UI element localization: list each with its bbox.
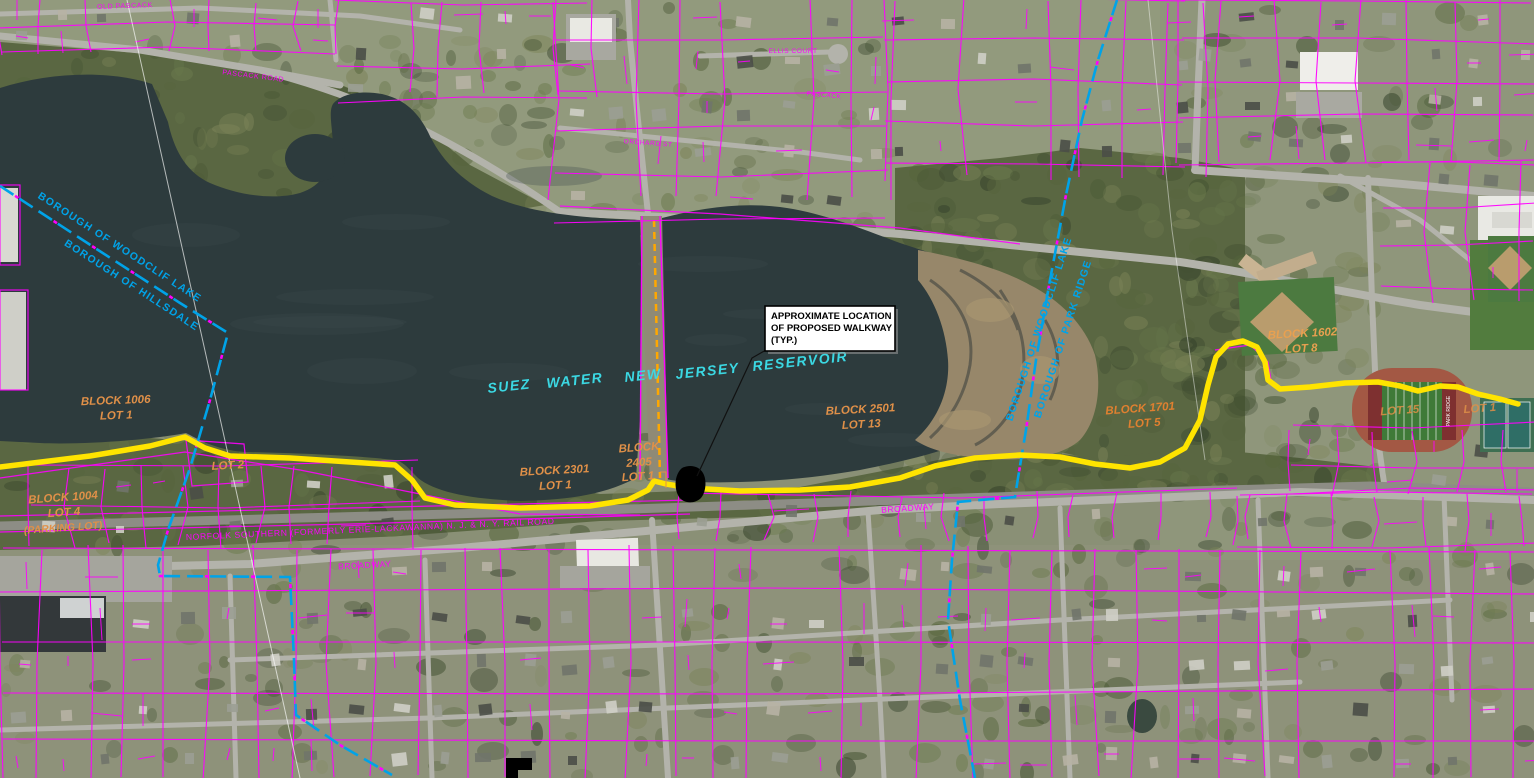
tree-blob xyxy=(1010,171,1020,181)
tree-blob xyxy=(1219,180,1237,202)
tree-blob xyxy=(1481,602,1495,622)
building xyxy=(1149,757,1158,769)
building xyxy=(1484,174,1499,186)
svg-text:LOT 1: LOT 1 xyxy=(539,479,572,493)
building xyxy=(307,613,319,625)
tree-blob xyxy=(534,90,546,104)
building xyxy=(735,16,751,28)
tree-blob xyxy=(798,195,814,205)
tree-blob xyxy=(1169,189,1187,199)
building xyxy=(1473,97,1482,106)
building xyxy=(1441,666,1454,677)
tree-blob xyxy=(1222,507,1236,531)
building xyxy=(1486,520,1495,530)
tree-blob xyxy=(995,223,1017,241)
tree-blob xyxy=(1100,467,1130,491)
building xyxy=(895,147,903,156)
tree-blob xyxy=(499,104,517,126)
building xyxy=(608,106,623,119)
tree-blob xyxy=(843,752,867,760)
tree-blob xyxy=(1172,219,1200,229)
building xyxy=(357,659,366,671)
water-streak xyxy=(685,334,747,346)
tree-blob xyxy=(1001,647,1017,657)
building xyxy=(785,57,800,64)
tree-blob xyxy=(1047,165,1067,185)
tree-blob xyxy=(212,124,240,134)
tree-blob xyxy=(1144,220,1164,238)
tree-blob xyxy=(474,139,484,147)
callout-line-2: OF PROPOSED WALKWAY xyxy=(771,323,893,334)
tree-blob xyxy=(977,214,999,222)
tree-blob xyxy=(689,668,719,686)
building xyxy=(433,705,442,718)
building xyxy=(1106,609,1118,621)
tree-blob xyxy=(1089,599,1115,609)
tree-blob xyxy=(1185,296,1207,306)
building xyxy=(570,108,585,116)
tree-blob xyxy=(1037,153,1051,165)
building xyxy=(306,709,317,720)
tree-blob xyxy=(1160,705,1170,729)
building xyxy=(181,612,195,624)
tree-blob xyxy=(1237,353,1257,371)
tree-blob xyxy=(742,178,760,194)
tree-blob xyxy=(219,656,229,668)
tree-blob xyxy=(1195,717,1207,741)
building xyxy=(1237,708,1252,718)
tree-blob xyxy=(786,734,816,752)
tree-blob xyxy=(1094,517,1114,537)
tree-blob xyxy=(857,212,873,222)
building xyxy=(1105,711,1116,723)
tree-blob xyxy=(413,72,439,82)
tree-blob xyxy=(1099,434,1109,448)
tree-blob xyxy=(1215,202,1235,216)
building xyxy=(391,752,407,767)
tree-blob xyxy=(524,39,542,51)
building xyxy=(1355,568,1366,576)
tree-blob xyxy=(474,107,498,123)
building xyxy=(61,710,73,722)
tree-blob xyxy=(164,82,176,90)
building xyxy=(1240,58,1252,67)
tree-blob xyxy=(983,717,999,741)
tree-blob xyxy=(263,105,287,121)
building xyxy=(697,517,708,526)
tree-blob xyxy=(627,711,647,729)
tree-blob xyxy=(948,218,980,232)
building xyxy=(899,568,916,581)
building xyxy=(1189,659,1205,670)
building xyxy=(227,704,238,712)
building xyxy=(1004,515,1014,525)
building xyxy=(562,664,578,675)
tree-blob xyxy=(858,43,874,55)
building xyxy=(766,701,781,716)
building xyxy=(571,191,585,200)
tree-blob xyxy=(1264,425,1282,447)
building xyxy=(1092,509,1101,520)
tree-blob xyxy=(288,540,302,554)
tree-blob xyxy=(102,57,116,67)
tennis-court xyxy=(1508,402,1530,448)
tree-blob xyxy=(956,754,968,772)
tree-blob xyxy=(81,49,99,59)
tree-blob xyxy=(1382,552,1396,564)
tree-blob xyxy=(1094,336,1108,358)
building xyxy=(823,63,840,76)
tree-blob xyxy=(622,669,650,677)
building xyxy=(348,84,363,93)
building xyxy=(1231,609,1246,621)
tree-blob xyxy=(162,747,178,763)
tree-blob xyxy=(529,617,541,631)
building xyxy=(730,757,739,770)
tree-blob xyxy=(1272,116,1298,138)
tree-blob xyxy=(527,107,555,119)
building xyxy=(1062,754,1078,766)
tree-blob xyxy=(531,722,543,746)
building xyxy=(349,704,365,715)
tree-blob xyxy=(1144,351,1166,363)
tree-blob xyxy=(921,701,951,713)
water-streak xyxy=(506,166,602,186)
building xyxy=(497,49,506,59)
tree-blob xyxy=(1124,316,1148,330)
tree-blob xyxy=(661,193,675,211)
building xyxy=(1311,609,1326,620)
tree-blob xyxy=(463,105,477,119)
building xyxy=(356,48,367,61)
building xyxy=(16,31,27,41)
tree-blob xyxy=(838,117,860,129)
map-canvas[interactable]: PARK RIDGE SUEZ WATER NEW JERSEY RESER xyxy=(0,0,1534,778)
building xyxy=(568,756,577,765)
building xyxy=(771,617,784,629)
tree-blob xyxy=(1032,568,1050,578)
tree-blob xyxy=(836,757,856,778)
building xyxy=(58,10,67,20)
building xyxy=(1178,61,1188,71)
tree-blob xyxy=(316,760,328,774)
tree-blob xyxy=(1284,724,1302,740)
tree-blob xyxy=(1257,234,1285,244)
tree-blob xyxy=(1116,380,1142,400)
building xyxy=(941,562,950,572)
building xyxy=(1101,100,1111,112)
building xyxy=(1059,140,1070,153)
building xyxy=(561,712,571,720)
building xyxy=(1102,146,1112,157)
tree-blob xyxy=(1099,356,1111,374)
tree-blob xyxy=(1264,396,1286,404)
water-streak xyxy=(230,313,404,335)
tree-blob xyxy=(987,178,1001,194)
building xyxy=(1321,755,1332,769)
tree-blob xyxy=(147,708,157,722)
tree-blob xyxy=(673,83,687,97)
tree-blob xyxy=(1072,544,1086,564)
tree-blob xyxy=(678,621,710,631)
building xyxy=(304,751,317,761)
tree-blob xyxy=(1306,199,1320,209)
svg-text:BLOCK 1006: BLOCK 1006 xyxy=(81,394,152,408)
tree-blob xyxy=(1460,15,1478,31)
tree-blob xyxy=(1208,457,1232,465)
tree-blob xyxy=(446,50,456,66)
svg-text:LOT 13: LOT 13 xyxy=(841,418,881,432)
svg-text:2405: 2405 xyxy=(625,456,653,470)
tree-blob xyxy=(289,109,315,129)
tree-blob xyxy=(712,745,734,765)
building xyxy=(1341,135,1353,144)
tree-blob xyxy=(961,513,993,537)
building xyxy=(475,753,491,762)
building xyxy=(786,505,797,517)
callout-line-1: APPROXIMATE LOCATION xyxy=(771,311,892,322)
tree-blob xyxy=(1265,452,1281,468)
building xyxy=(1071,608,1081,620)
tree-blob xyxy=(1222,419,1246,441)
tree-blob xyxy=(1098,447,1108,463)
tree-blob xyxy=(1033,477,1043,487)
callout-line-3: (TYP.) xyxy=(771,335,797,346)
tree-blob xyxy=(1411,114,1433,130)
tree-blob xyxy=(1176,209,1190,219)
building xyxy=(1353,702,1369,716)
building xyxy=(1447,517,1458,527)
tree-blob xyxy=(1234,389,1256,411)
tree-blob xyxy=(984,674,1008,684)
tree-blob xyxy=(516,148,544,160)
building xyxy=(477,654,486,667)
building xyxy=(941,19,955,29)
tree-blob xyxy=(1188,182,1206,202)
tree-blob xyxy=(970,470,986,482)
industrial-left-2 xyxy=(0,292,26,390)
tree-blob xyxy=(1259,5,1281,15)
tree-blob xyxy=(514,55,526,71)
field-text: PARK RIDGE xyxy=(1446,395,1452,426)
svg-text:LOT 5: LOT 5 xyxy=(1128,417,1162,431)
small-pond xyxy=(1127,699,1157,733)
tree-blob xyxy=(1404,735,1426,745)
building xyxy=(1289,139,1303,148)
tree-blob xyxy=(734,155,756,169)
tree-blob xyxy=(1236,196,1256,208)
tree-blob xyxy=(4,481,30,491)
building xyxy=(827,17,839,26)
tree-blob xyxy=(680,147,692,159)
tree-blob xyxy=(909,743,941,763)
tree-blob xyxy=(1291,638,1311,658)
building xyxy=(307,481,320,489)
tree-blob xyxy=(464,629,486,645)
building xyxy=(97,14,106,22)
tree-blob xyxy=(1343,565,1355,587)
tree-blob xyxy=(1207,718,1237,740)
tree-blob xyxy=(1156,326,1168,350)
building xyxy=(849,657,864,666)
tree-blob xyxy=(339,45,357,63)
tree-blob xyxy=(907,202,931,212)
tree-blob xyxy=(1035,706,1051,724)
tree-blob xyxy=(71,58,83,76)
tree-blob xyxy=(1243,722,1255,732)
water-streak xyxy=(342,214,450,230)
industrial-left-1 xyxy=(0,188,18,262)
building xyxy=(1485,563,1495,576)
building xyxy=(1245,102,1260,110)
aerial-map[interactable]: PARK RIDGE SUEZ WATER NEW JERSEY RESER xyxy=(0,0,1534,778)
tree-blob xyxy=(505,81,521,91)
tree-blob xyxy=(722,88,732,106)
tree-blob xyxy=(728,568,758,582)
tree-blob xyxy=(1119,272,1131,294)
tree-blob xyxy=(490,569,516,577)
building xyxy=(1019,704,1029,713)
building xyxy=(1018,64,1032,74)
tree-blob xyxy=(1214,473,1228,487)
building xyxy=(1197,615,1206,622)
tree-blob xyxy=(195,678,225,690)
building xyxy=(1177,102,1189,114)
tree-blob xyxy=(535,665,547,687)
building xyxy=(1428,94,1441,104)
tree-blob xyxy=(264,91,280,99)
tree-blob xyxy=(133,458,163,476)
tree-blob xyxy=(1189,237,1217,257)
building xyxy=(1320,660,1333,670)
svg-text:LOT 8: LOT 8 xyxy=(1285,342,1319,356)
tree-blob xyxy=(948,705,968,715)
tree-blob xyxy=(1346,627,1364,641)
building xyxy=(1310,567,1324,578)
tree-blob xyxy=(398,53,410,73)
building xyxy=(936,664,949,675)
building xyxy=(1396,759,1409,768)
tree-blob xyxy=(1350,748,1368,762)
building xyxy=(1440,225,1455,234)
tree-blob xyxy=(245,674,257,682)
tree-blob xyxy=(983,166,1013,180)
tree-blob xyxy=(1220,394,1234,404)
tree-blob xyxy=(1059,467,1091,477)
tree-blob xyxy=(379,35,401,49)
building xyxy=(524,653,536,666)
building xyxy=(185,753,194,764)
tree-blob xyxy=(1329,438,1355,452)
tree-blob xyxy=(839,566,869,584)
tree-blob xyxy=(175,112,185,124)
building xyxy=(1286,60,1299,68)
tree-blob xyxy=(1,683,11,697)
building xyxy=(1396,220,1411,228)
tree-blob xyxy=(1304,517,1336,527)
building xyxy=(419,7,434,20)
tree-blob xyxy=(1470,685,1502,703)
building xyxy=(979,654,993,667)
tree-blob xyxy=(1443,149,1457,171)
building xyxy=(869,108,880,121)
tree-blob xyxy=(1084,575,1108,599)
building xyxy=(1429,138,1440,151)
tree-blob xyxy=(1331,423,1347,437)
tree-blob xyxy=(1309,407,1319,423)
label-lot-2: LOT 2 xyxy=(211,459,245,473)
tree-blob xyxy=(521,121,547,129)
peninsula-pond xyxy=(285,134,345,182)
building xyxy=(639,701,653,712)
tree-blob xyxy=(1268,511,1290,527)
svg-text:LOT 1: LOT 1 xyxy=(100,409,133,422)
building xyxy=(440,752,449,765)
large-building-top-right xyxy=(1300,52,1358,90)
water-streak xyxy=(307,358,417,384)
tree-blob xyxy=(1208,547,1224,557)
building xyxy=(189,486,204,500)
tree-blob xyxy=(1116,195,1142,211)
building xyxy=(1178,143,1191,153)
water-streak xyxy=(276,289,434,305)
building xyxy=(978,53,987,65)
building xyxy=(1108,658,1120,667)
building xyxy=(229,35,240,48)
tree-blob xyxy=(694,194,708,202)
tree-blob xyxy=(1409,568,1423,586)
tree-blob xyxy=(1279,444,1309,462)
tree-blob xyxy=(1213,278,1229,292)
building xyxy=(1198,48,1211,61)
tree-blob xyxy=(1380,672,1402,692)
tree-blob xyxy=(663,2,675,14)
tree-blob xyxy=(258,169,274,179)
building xyxy=(1234,661,1250,671)
building xyxy=(482,562,492,571)
building xyxy=(651,108,666,121)
tree-blob xyxy=(1330,144,1350,164)
tree-blob xyxy=(1342,521,1372,539)
tree-blob xyxy=(1488,139,1512,157)
tree-blob xyxy=(634,736,648,752)
tree-blob xyxy=(938,205,950,213)
building xyxy=(1530,612,1534,622)
building xyxy=(1277,610,1290,618)
tree-blob xyxy=(694,708,726,718)
building xyxy=(1233,753,1247,763)
tree-blob xyxy=(1138,203,1160,223)
building xyxy=(270,653,280,666)
svg-text:LOT 4: LOT 4 xyxy=(47,506,81,520)
tree-blob xyxy=(15,732,35,744)
tree-blob xyxy=(197,128,207,150)
building xyxy=(891,100,906,110)
tree-blob xyxy=(1303,740,1323,758)
building xyxy=(100,754,109,765)
building xyxy=(1438,173,1449,184)
tree-blob xyxy=(1372,145,1402,163)
tree-blob xyxy=(451,36,479,46)
building xyxy=(432,562,446,572)
building xyxy=(1432,49,1441,60)
tree-blob xyxy=(727,530,751,544)
building xyxy=(773,659,782,671)
building xyxy=(916,513,931,522)
tree-blob xyxy=(1345,348,1369,368)
building xyxy=(1448,757,1457,765)
label-lot-1: LOT 1 xyxy=(1463,402,1496,416)
